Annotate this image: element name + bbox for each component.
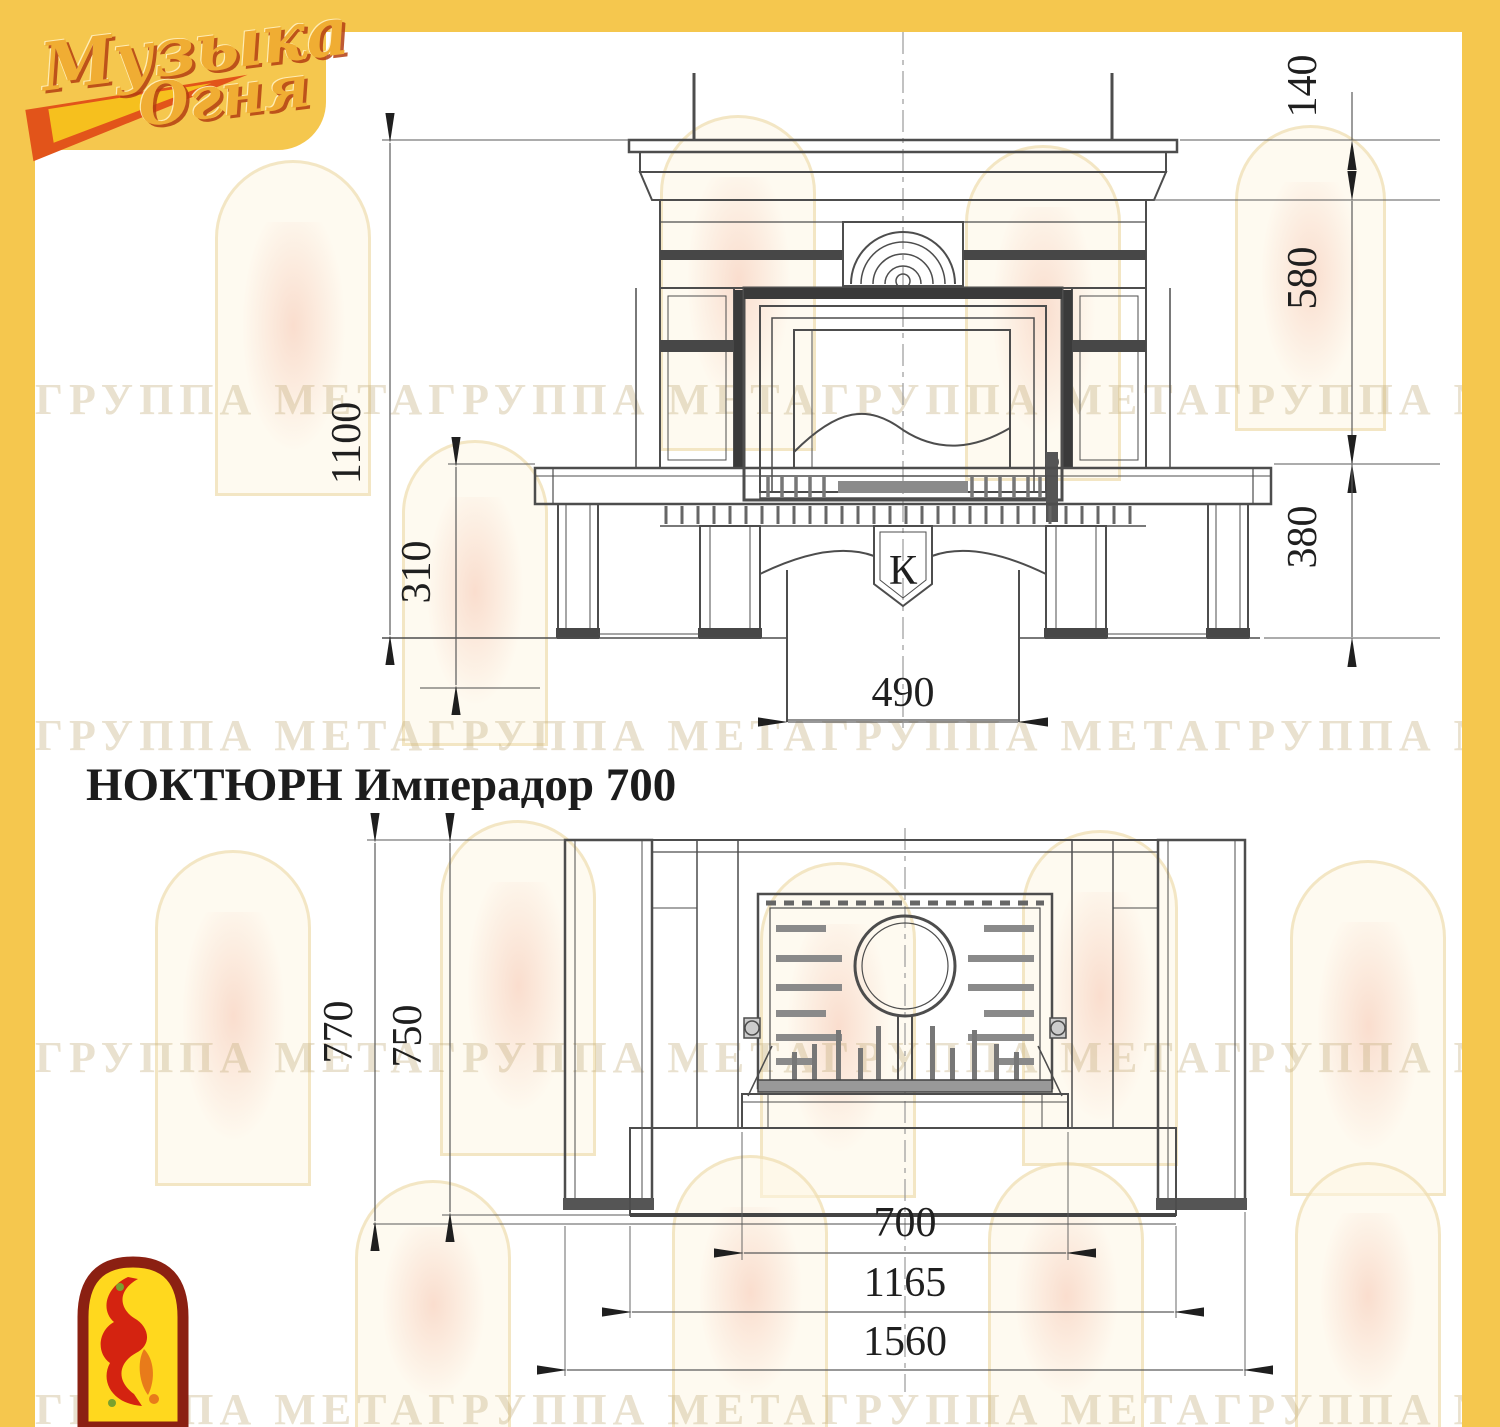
front-view-drawing: К 1100 310 140 580 380 490 bbox=[324, 32, 1440, 730]
front-dim-pedestal-width-label: 490 bbox=[872, 670, 935, 716]
front-dim-cornice-height-label: 140 bbox=[1280, 55, 1326, 118]
arch-flame-logo-icon bbox=[76, 1253, 190, 1427]
plan-dim-depth-total-label: 770 bbox=[316, 1001, 362, 1064]
plan-dim-opening-width-label: 700 bbox=[874, 1200, 937, 1246]
front-dim-opening-height-label: 580 bbox=[1280, 247, 1326, 310]
front-dim-hearth-height-label: 310 bbox=[394, 541, 440, 604]
base-front bbox=[382, 504, 1260, 722]
plan-dim-hearth-width-label: 1165 bbox=[864, 1260, 946, 1306]
fireplace-technical-drawing: К 1100 310 140 580 380 490 bbox=[0, 0, 1500, 1427]
plan-view-drawing: 770 750 700 1165 1560 bbox=[316, 828, 1247, 1392]
plan-dim-depth-inner-label: 750 bbox=[385, 1005, 431, 1068]
scanned-drawing-page: ГРУППА МЕТАГРУППА МЕТАГРУППА МЕТАГРУППА … bbox=[0, 0, 1500, 1427]
plan-dim-total-width-label: 1560 bbox=[863, 1319, 947, 1365]
front-dim-base-height-label: 380 bbox=[1280, 506, 1326, 569]
front-dimension-lines bbox=[382, 92, 1440, 722]
front-dim-total-height-label: 1100 bbox=[324, 402, 370, 484]
keystone-letter: К bbox=[889, 548, 918, 594]
